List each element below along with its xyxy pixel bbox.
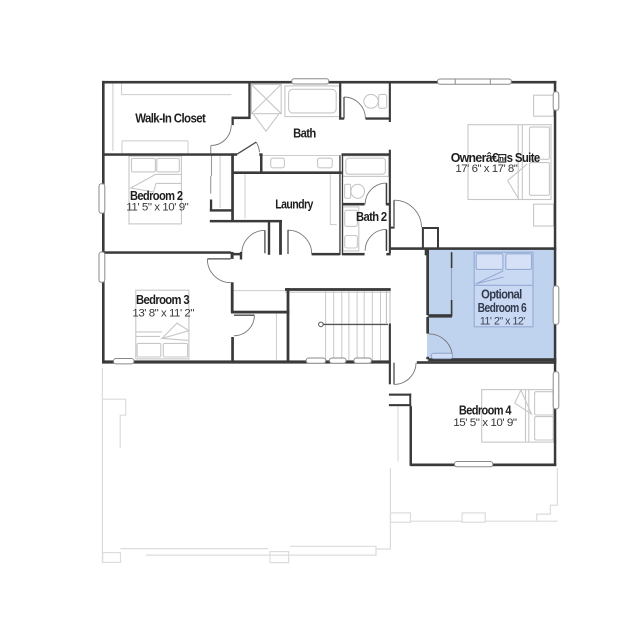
svg-text:11' 5" x 10' 9": 11' 5" x 10' 9" [126,201,189,213]
svg-text:Optional: Optional [481,287,522,301]
svg-text:s Suite: s Suite [507,151,541,165]
svg-text:Laundry: Laundry [275,197,313,211]
svg-text:Bath 2: Bath 2 [356,210,387,224]
svg-text:Bedroom 6: Bedroom 6 [478,301,527,315]
svg-text:15' 5" x 10' 9": 15' 5" x 10' 9" [453,417,517,429]
svg-text:Ownerâ€: Ownerâ€ [451,151,499,165]
svg-text:Bath: Bath [293,126,316,140]
svg-text:13' 8" x 11' 2": 13' 8" x 11' 2" [132,307,194,319]
svg-text:TM: TM [499,157,506,163]
svg-text:Bedroom 3: Bedroom 3 [136,293,190,307]
svg-text:Bedroom 4: Bedroom 4 [459,404,512,418]
svg-text:11' 2" x 12': 11' 2" x 12' [480,315,525,327]
svg-text:Walk-In Closet: Walk-In Closet [135,110,206,125]
